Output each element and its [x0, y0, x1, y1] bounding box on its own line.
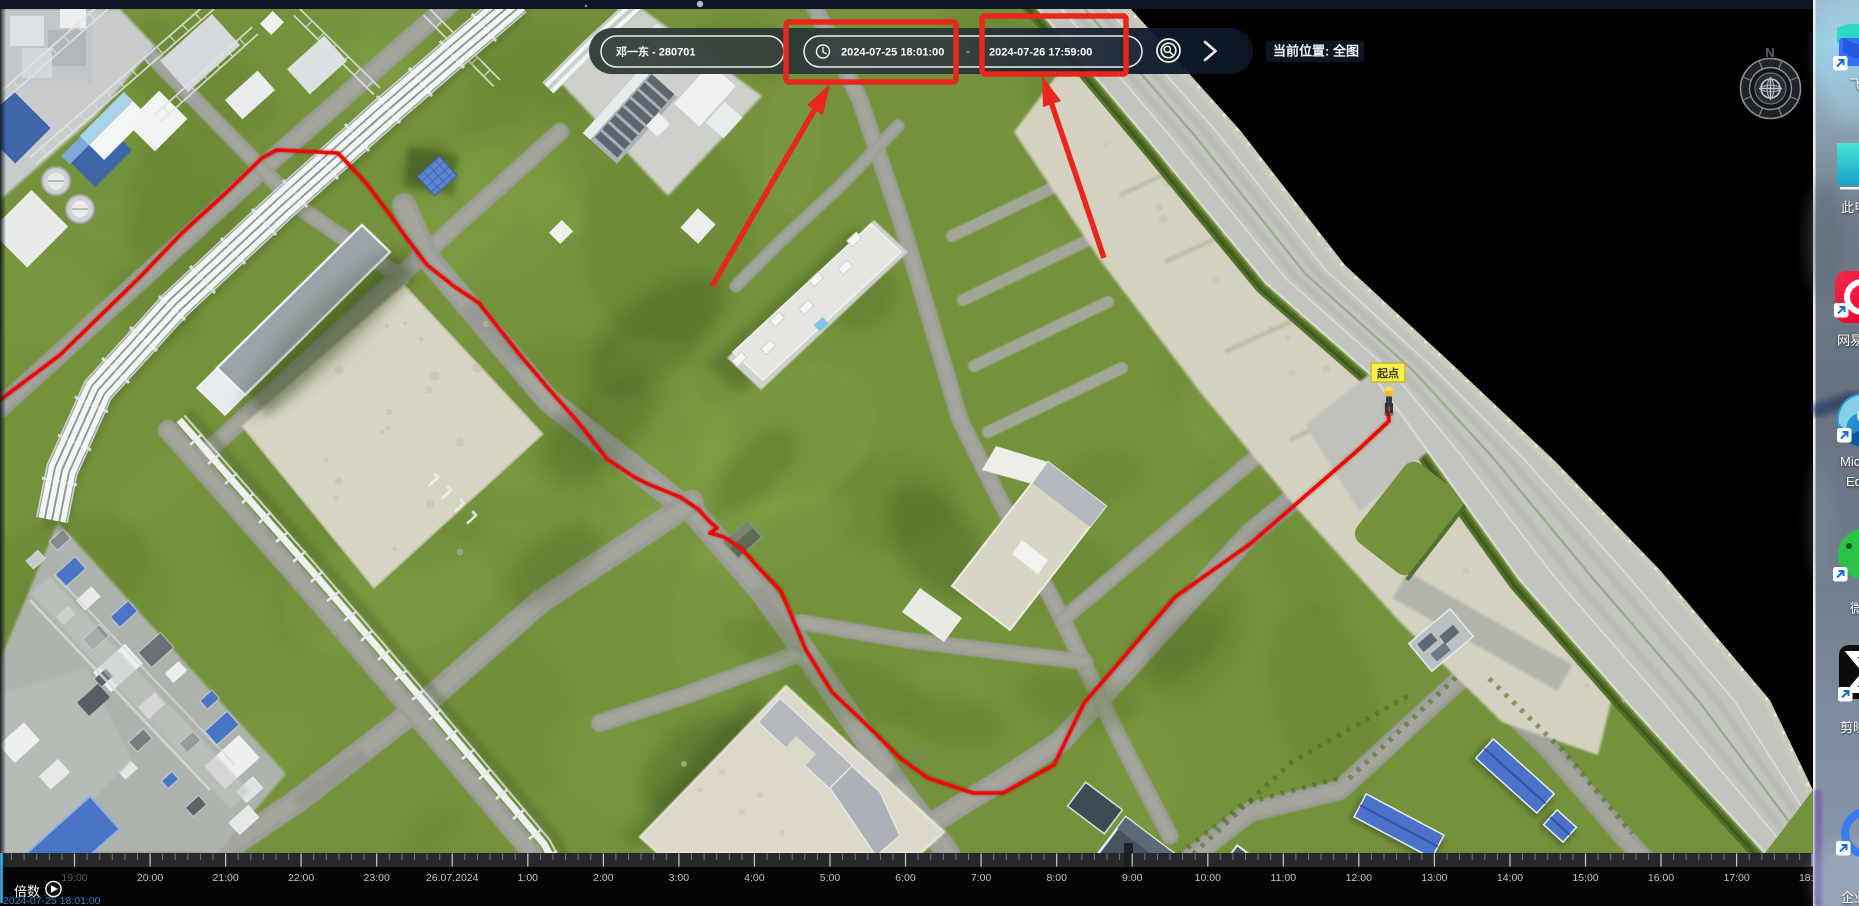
- svg-text:Microsoft: Microsoft: [1840, 454, 1859, 469]
- svg-text:剪映专业版: 剪映专业版: [1840, 720, 1859, 735]
- svg-text:微信: 微信: [1850, 601, 1859, 616]
- svg-text:3:00: 3:00: [669, 872, 690, 884]
- svg-text:5:00: 5:00: [820, 872, 841, 884]
- svg-text:起点: 起点: [1376, 366, 1399, 380]
- svg-text:6:00: 6:00: [895, 872, 916, 884]
- svg-text:22:00: 22:00: [288, 872, 314, 884]
- svg-text:邓一东 - 280701: 邓一东 - 280701: [616, 45, 695, 59]
- svg-text:12:00: 12:00: [1346, 872, 1372, 884]
- svg-text:飞书: 飞书: [1849, 77, 1859, 92]
- svg-text:4:00: 4:00: [744, 872, 765, 884]
- svg-text:2024-07-25 18:01:00: 2024-07-25 18:01:00: [841, 47, 944, 59]
- svg-text:此电脑: 此电脑: [1841, 200, 1859, 215]
- svg-text:23:00: 23:00: [364, 872, 390, 884]
- svg-text:当前位置: 全图: 当前位置: 全图: [1273, 44, 1359, 59]
- svg-text:2024-07-26 17:59:00: 2024-07-26 17:59:00: [989, 47, 1092, 59]
- svg-text:14:00: 14:00: [1497, 872, 1523, 884]
- svg-text:2:00: 2:00: [593, 872, 614, 884]
- svg-text:9:00: 9:00: [1122, 872, 1143, 884]
- svg-text:倍数: 倍数: [14, 884, 40, 899]
- svg-text:1:00: 1:00: [518, 872, 539, 884]
- svg-text:20:00: 20:00: [137, 872, 163, 884]
- svg-text:21:00: 21:00: [212, 872, 238, 884]
- svg-text:7:00: 7:00: [971, 872, 992, 884]
- svg-text:15:00: 15:00: [1572, 872, 1598, 884]
- svg-text:10:00: 10:00: [1195, 872, 1221, 884]
- svg-text:26.07.2024: 26.07.2024: [426, 872, 479, 884]
- svg-text:8:00: 8:00: [1046, 872, 1067, 884]
- svg-text:17:00: 17:00: [1723, 872, 1749, 884]
- svg-text:19:00: 19:00: [61, 872, 87, 884]
- svg-text:13:00: 13:00: [1421, 872, 1447, 884]
- svg-text:网易云音乐: 网易云音乐: [1837, 333, 1859, 348]
- svg-text:Edge: Edge: [1846, 474, 1859, 489]
- svg-text:-: -: [966, 44, 970, 58]
- svg-text:企业微信: 企业微信: [1841, 890, 1859, 905]
- svg-text:11:00: 11:00: [1271, 872, 1297, 884]
- svg-text:16:00: 16:00: [1648, 872, 1674, 884]
